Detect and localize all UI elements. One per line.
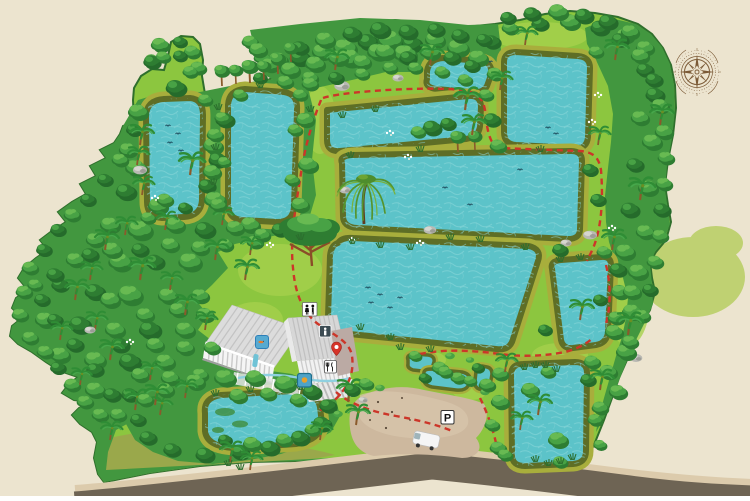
svg-text:P: P: [444, 413, 451, 425]
